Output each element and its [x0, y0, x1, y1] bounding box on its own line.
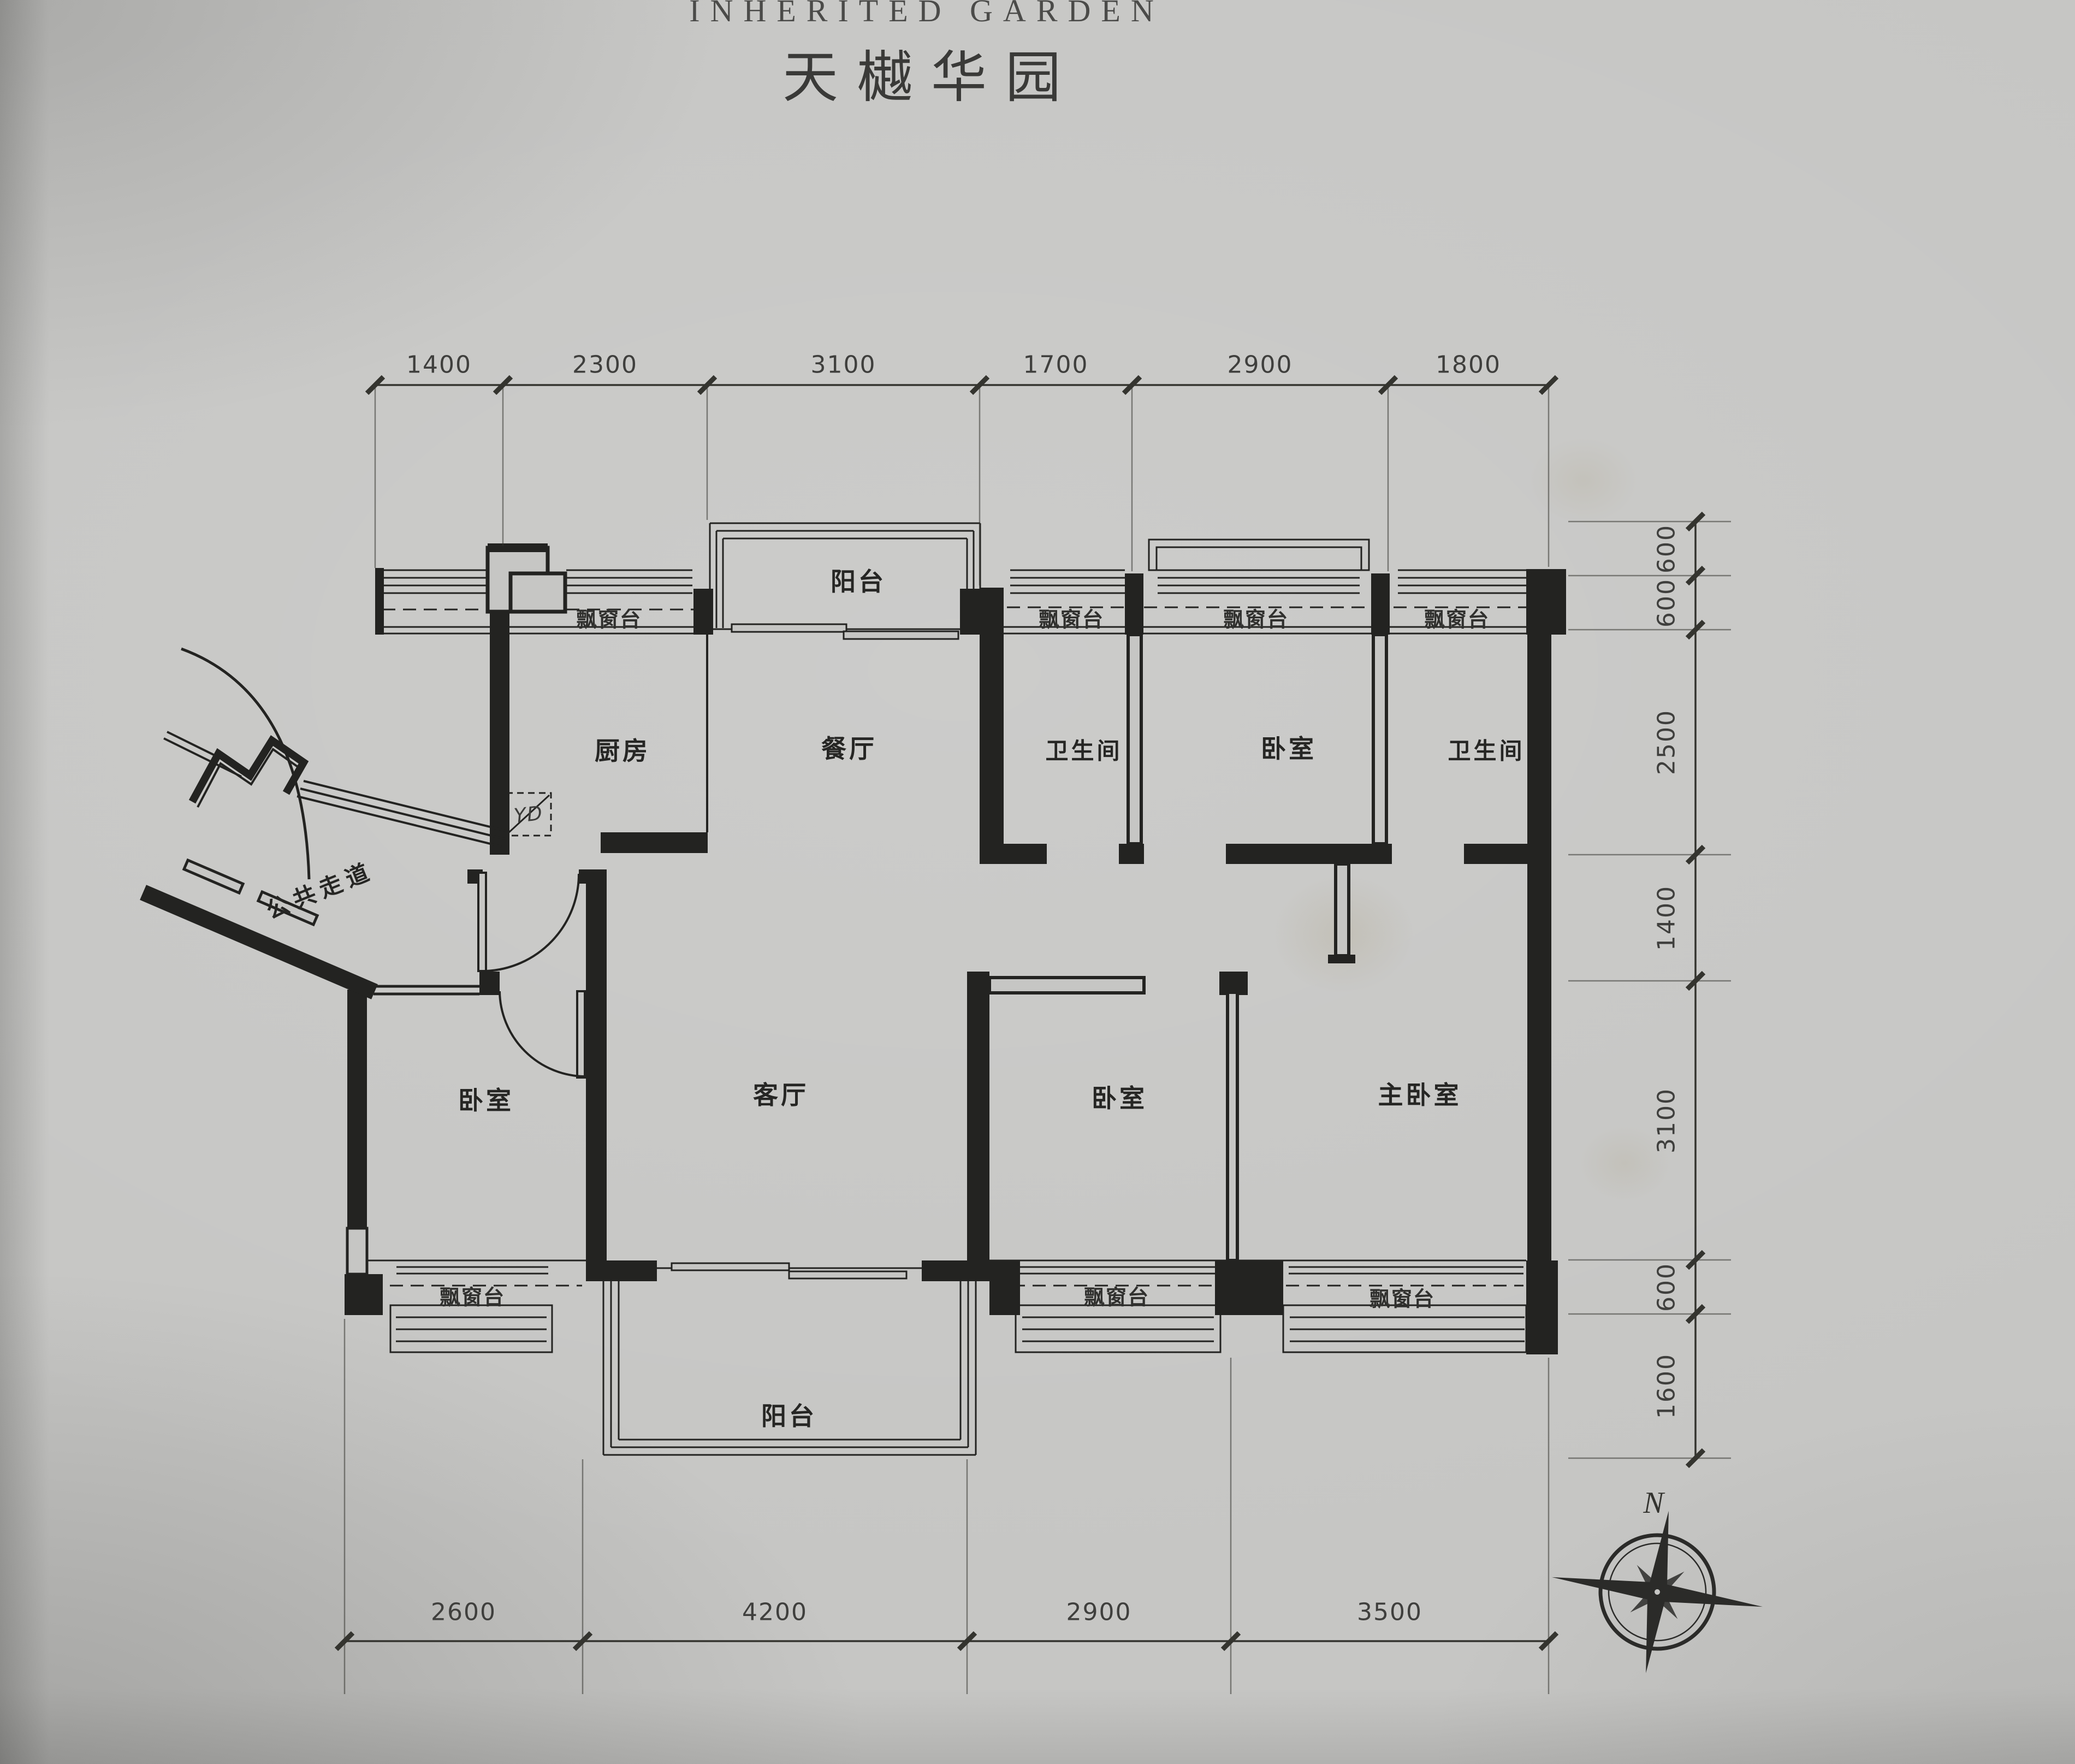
room-label-bath_top_right: 卫生间: [1448, 733, 1525, 766]
dim-label-right-4: 3100: [1653, 1088, 1681, 1153]
corridor-zigzag-wall: [192, 741, 304, 802]
dim-label-top-2: 3100: [811, 351, 876, 379]
dim-label-right-5: 600: [1653, 1263, 1681, 1312]
room-label-bed_mid: 卧室: [1092, 1079, 1147, 1115]
bay-window-label-bay_kitchen: 飘窗台: [576, 603, 642, 633]
dim-label-right-0: 600: [1653, 524, 1681, 573]
room-label-living: 客厅: [753, 1075, 809, 1111]
bay-window-label-bay_bed_left: 飘窗台: [440, 1281, 505, 1311]
bed-left-door: [500, 991, 585, 1078]
dim-label-bottom-3: 3500: [1357, 1599, 1422, 1626]
compass-north-label: N: [1643, 1485, 1663, 1520]
room-label-bath_top_left: 卫生间: [1045, 733, 1122, 766]
dim-label-top-1: 2300: [572, 351, 638, 379]
balcony-top-sliding-door: [713, 624, 977, 639]
room-label-bed_left: 卧室: [458, 1081, 514, 1117]
dim-label-top-3: 1700: [1023, 351, 1089, 379]
dim-label-top-4: 2900: [1228, 351, 1293, 379]
room-label-master: 主卧室: [1378, 1075, 1462, 1111]
dim-label-bottom-0: 2600: [431, 1599, 496, 1626]
compass-rose-icon: [1540, 1496, 1774, 1688]
dim-label-right-6: 1600: [1653, 1353, 1681, 1419]
bay-window-label-bay_bed_mid: 飘窗台: [1084, 1281, 1149, 1311]
dim-label-top-0: 1400: [406, 351, 472, 379]
room-label-balcony_top: 阳台: [831, 562, 886, 598]
bay-window-label-bay_bath_left: 飘窗台: [1039, 603, 1104, 633]
room-label-bed_top: 卧室: [1261, 729, 1317, 765]
bay-window-label-bay_bath_right: 飘窗台: [1424, 603, 1490, 633]
dim-label-bottom-2: 2900: [1066, 1599, 1132, 1626]
living-sliding-door: [657, 1263, 922, 1278]
building-entry-door-arc: [181, 649, 309, 879]
room-label-balcony_bottom: 阳台: [761, 1396, 817, 1432]
floorplan-photo: INHERITED GARDEN 天樾华园: [0, 0, 2075, 1764]
dim-label-right-3: 1400: [1653, 885, 1681, 951]
dim-label-top-5: 1800: [1436, 351, 1501, 379]
meter-box-label: YD: [513, 802, 544, 827]
bay-window-label-bay_master: 飘窗台: [1369, 1282, 1435, 1312]
dim-label-right-1: 600: [1653, 578, 1681, 628]
dim-label-bottom-1: 4200: [742, 1599, 808, 1626]
dim-label-right-2: 2500: [1653, 709, 1681, 775]
bay-window-label-bay_bed_top: 飘窗台: [1223, 603, 1289, 633]
hall-door: [478, 873, 579, 971]
room-label-dining: 餐厅: [821, 729, 877, 765]
room-label-kitchen: 厨房: [595, 731, 650, 767]
